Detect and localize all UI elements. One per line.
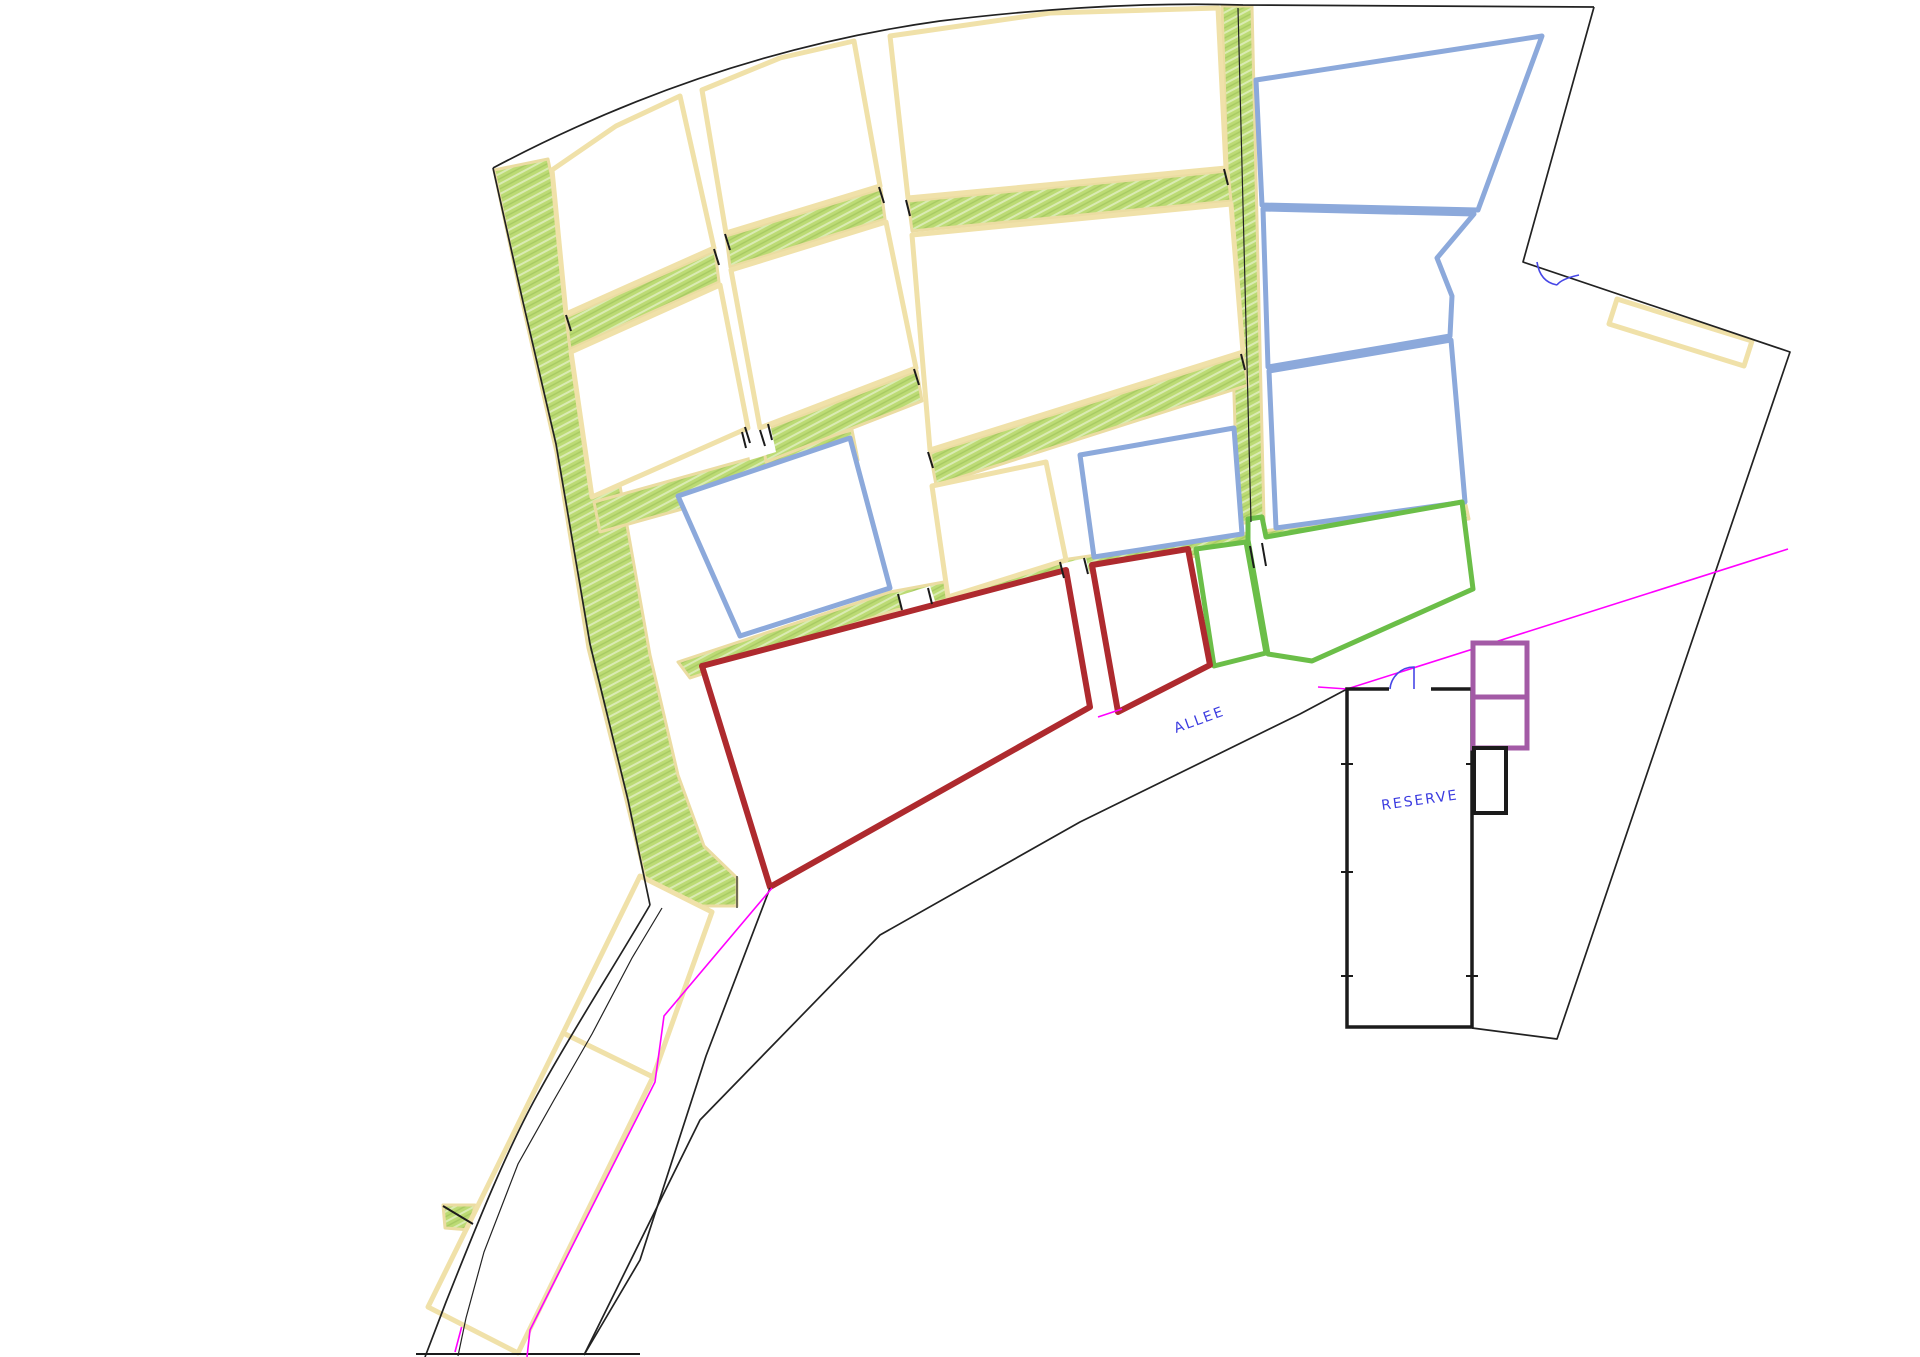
- road-edge-lower: [584, 689, 1347, 1355]
- direction-arrow-icon: [673, 597, 681, 606]
- door-opening: [1389, 684, 1431, 694]
- site-plan-canvas: ALLEE RESERVE: [0, 0, 1920, 1357]
- boundary-right: [1472, 7, 1790, 1039]
- parcel-blue[interactable]: [1269, 340, 1465, 528]
- building-outline[interactable]: [1347, 689, 1472, 1027]
- allee-label: ALLEE: [1172, 704, 1227, 737]
- annex-purple-box[interactable]: [1473, 643, 1527, 697]
- parcel-cream[interactable]: [890, 8, 1226, 198]
- parcel-red-small[interactable]: [1092, 549, 1210, 712]
- parcel-cream-bottom[interactable]: [428, 1033, 653, 1353]
- site-plan-drawing: ALLEE RESERVE: [0, 0, 1920, 1357]
- annex-purple-box[interactable]: [1473, 697, 1527, 748]
- parcel-blue[interactable]: [1256, 36, 1542, 210]
- reserve-building[interactable]: [1341, 643, 1527, 1027]
- direction-arrow-icon: [660, 590, 668, 599]
- parcel-blue[interactable]: [1080, 428, 1242, 557]
- annex-black-box[interactable]: [1474, 748, 1506, 813]
